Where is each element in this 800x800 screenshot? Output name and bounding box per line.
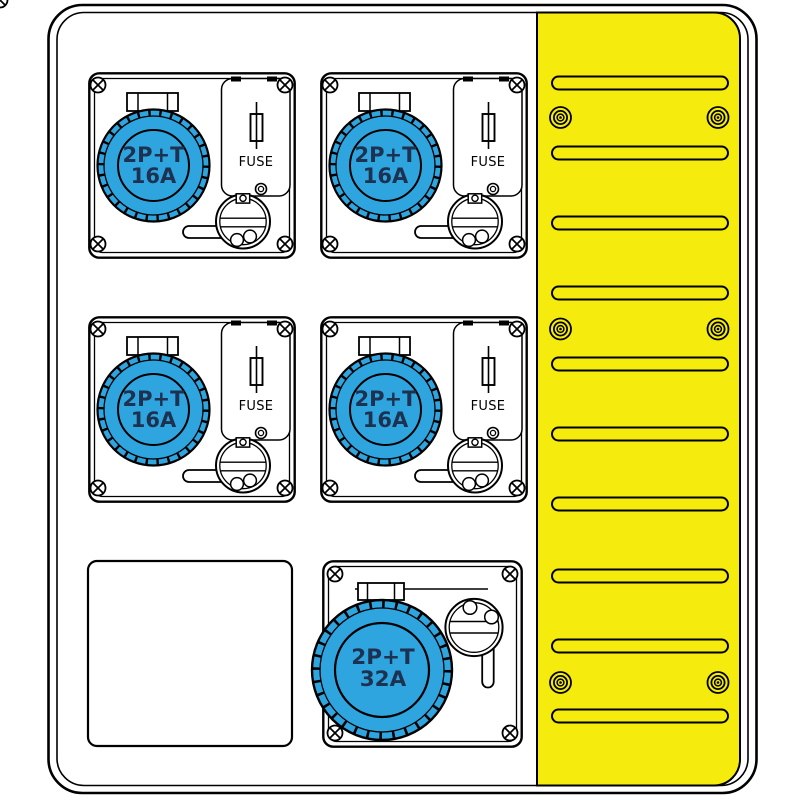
corner-screw-icon <box>328 567 343 582</box>
panel-screw-icon <box>550 107 571 128</box>
panel-screw-icon <box>550 672 571 693</box>
corner-screw-icon <box>503 567 518 582</box>
panel-screw-icon <box>550 319 571 340</box>
socket-module-16a-1: FUSE 2P+T 16A <box>89 73 294 257</box>
rotary-pin <box>231 234 244 247</box>
corner-screw-icon <box>278 237 293 252</box>
corner-screw-icon <box>0 0 8 8</box>
fuse-label: FUSE <box>239 155 274 170</box>
enclosure-drawing: FUSE 2P+T 16A <box>0 0 800 800</box>
socket-rating-line2: 32A <box>360 667 407 692</box>
blank-plate <box>88 561 292 746</box>
fuse-compartment-tab <box>267 77 277 82</box>
corner-screw-icon <box>91 78 106 93</box>
rotary-pin <box>463 601 477 615</box>
socket-module-32a: 2P+T 32A <box>312 561 522 746</box>
socket-clip <box>358 583 404 600</box>
rotary-pin <box>244 230 257 243</box>
panel-screw-icon <box>708 672 729 693</box>
socket-module-16a-2 <box>321 73 526 257</box>
rotary-pin <box>485 610 499 624</box>
vent-panel-cover <box>537 13 740 786</box>
corner-screw-icon <box>328 726 343 741</box>
panel-screw-icon <box>708 319 729 340</box>
fuse-compartment-tab <box>231 77 241 82</box>
corner-screw-icon <box>91 237 106 252</box>
distribution-box-drawing: FUSE 2P+T 16A <box>0 0 800 800</box>
small-screw-icon <box>256 184 267 195</box>
socket-clip <box>127 93 178 111</box>
socket-module-16a-4 <box>321 317 526 501</box>
panel-screw-icon <box>708 107 729 128</box>
socket-module-16a-3 <box>89 317 294 501</box>
socket-rating-line2: 16A <box>131 164 177 188</box>
corner-screw-icon <box>503 726 518 741</box>
corner-screw-icon <box>278 78 293 93</box>
vent-panel <box>537 13 740 786</box>
